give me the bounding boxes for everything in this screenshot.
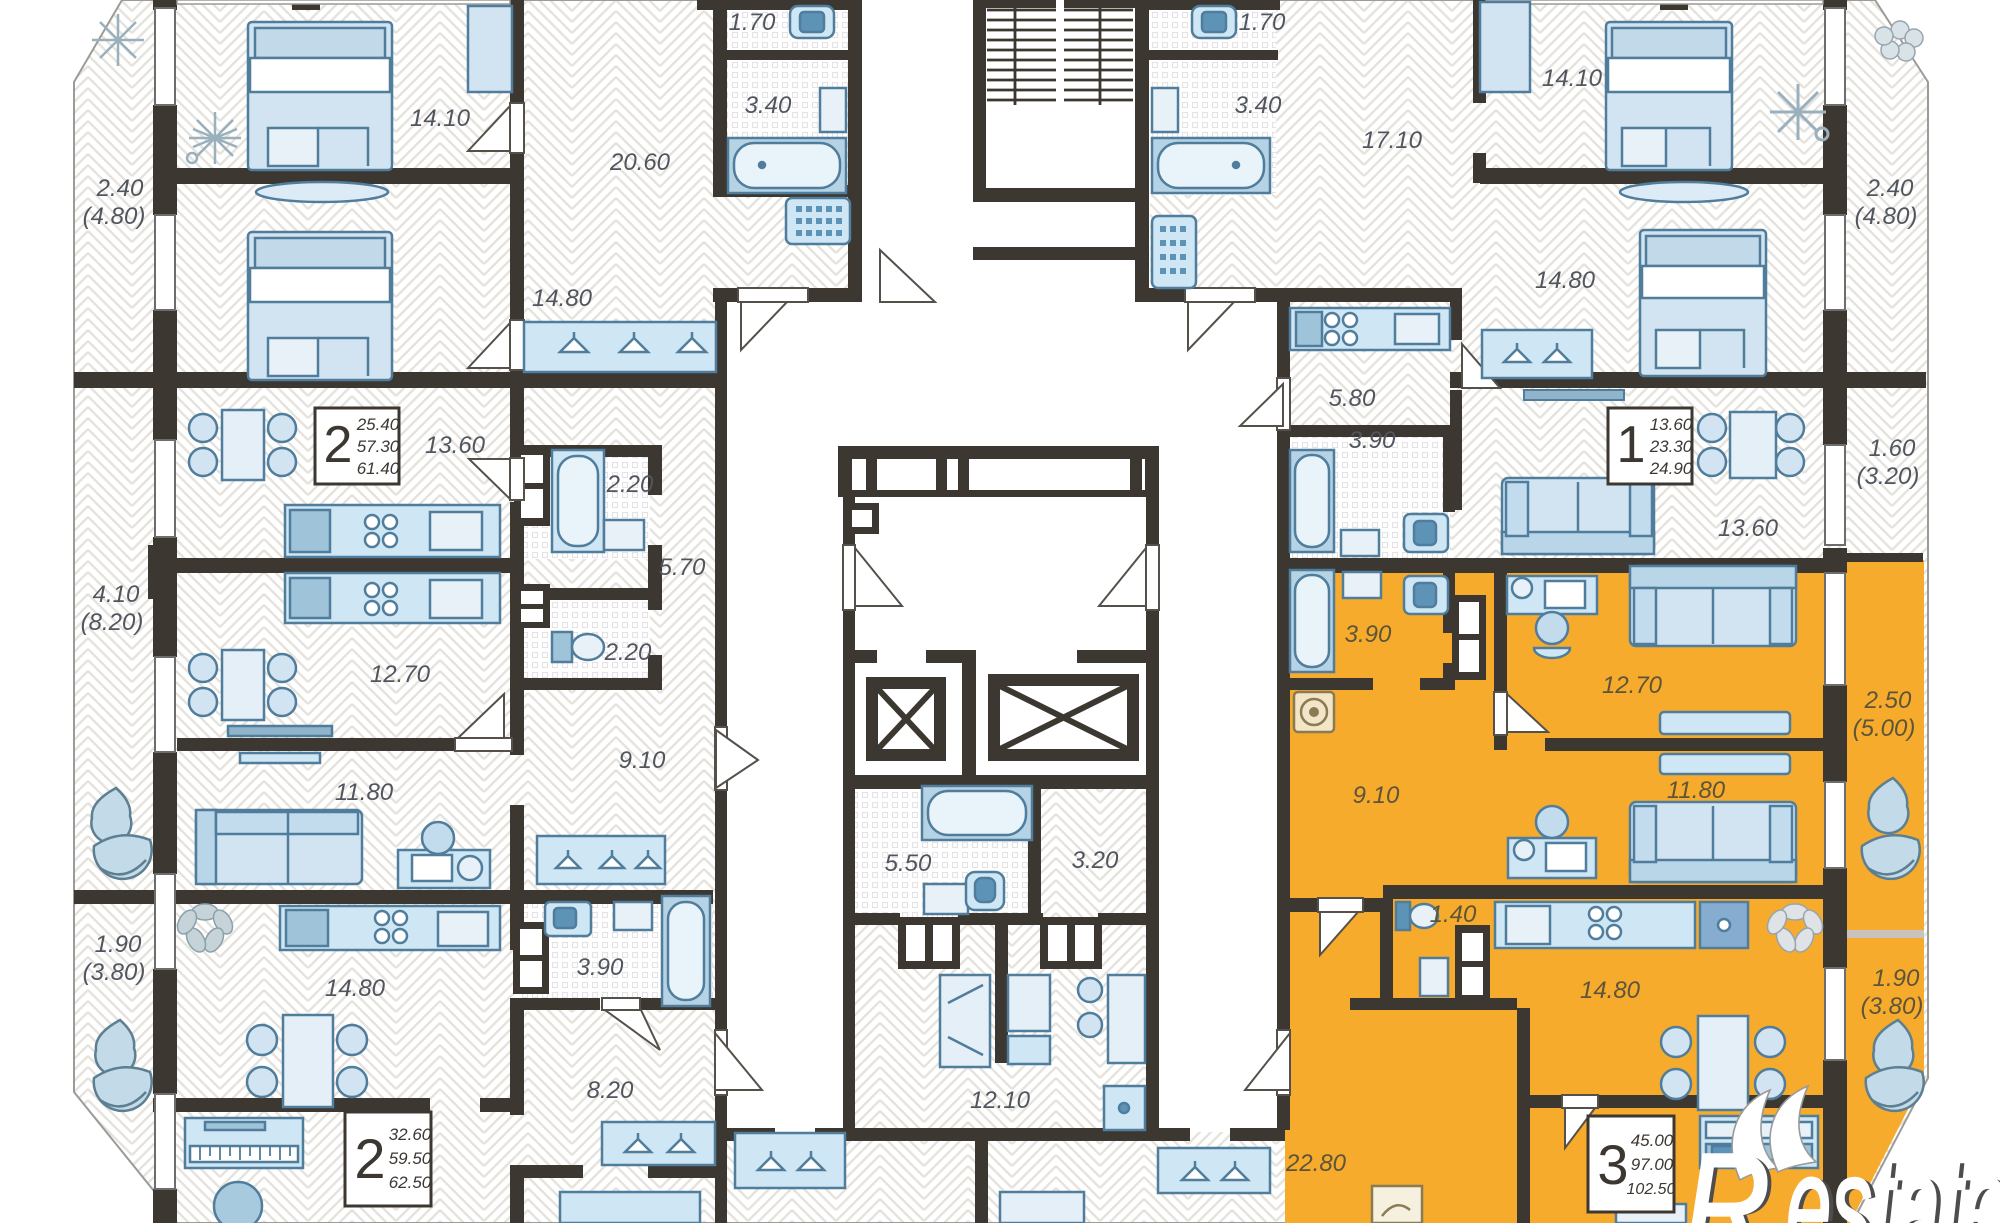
svg-text:1.90: 1.90 xyxy=(95,931,142,958)
svg-text:32.60: 32.60 xyxy=(389,1125,432,1144)
svg-text:8.20: 8.20 xyxy=(587,1077,634,1104)
svg-text:(5.00): (5.00) xyxy=(1853,715,1916,742)
svg-text:3.90: 3.90 xyxy=(1349,427,1396,454)
svg-text:23.30: 23.30 xyxy=(1649,437,1693,456)
svg-text:2.40: 2.40 xyxy=(1866,175,1914,202)
svg-text:12.70: 12.70 xyxy=(1602,672,1663,699)
svg-text:(3.80): (3.80) xyxy=(83,959,146,986)
svg-text:3.40: 3.40 xyxy=(1235,92,1282,119)
svg-text:12.10: 12.10 xyxy=(970,1087,1031,1114)
svg-text:1.60: 1.60 xyxy=(1869,435,1916,462)
svg-text:14.80: 14.80 xyxy=(532,285,593,312)
svg-text:13.60: 13.60 xyxy=(1650,415,1693,434)
svg-text:45.00: 45.00 xyxy=(1631,1131,1674,1150)
svg-text:3.40: 3.40 xyxy=(745,92,792,119)
svg-text:14.80: 14.80 xyxy=(325,975,386,1002)
svg-text:11.80: 11.80 xyxy=(335,779,394,806)
svg-text:2.20: 2.20 xyxy=(606,471,654,498)
svg-text:2.20: 2.20 xyxy=(604,639,652,666)
svg-text:estate: estate xyxy=(1786,1125,2000,1223)
svg-text:(3.80): (3.80) xyxy=(1861,993,1924,1020)
svg-text:97.00: 97.00 xyxy=(1631,1155,1674,1174)
svg-text:11.80: 11.80 xyxy=(1667,777,1726,804)
svg-text:2.40: 2.40 xyxy=(96,175,144,202)
svg-text:3.90: 3.90 xyxy=(1345,621,1392,648)
svg-text:5.50: 5.50 xyxy=(885,850,932,877)
svg-text:R: R xyxy=(1684,1122,1770,1223)
svg-text:20.60: 20.60 xyxy=(609,149,671,176)
svg-text:2.50: 2.50 xyxy=(1864,687,1912,714)
svg-text:2: 2 xyxy=(354,1127,385,1190)
svg-text:102.50: 102.50 xyxy=(1627,1181,1676,1198)
svg-text:62.50: 62.50 xyxy=(389,1173,432,1192)
svg-text:24.90: 24.90 xyxy=(1649,459,1693,478)
svg-text:14.80: 14.80 xyxy=(1535,267,1596,294)
svg-text:9.10: 9.10 xyxy=(619,747,666,774)
svg-text:(4.80): (4.80) xyxy=(1855,203,1918,230)
svg-text:(3.20): (3.20) xyxy=(1857,463,1920,490)
svg-text:1.90: 1.90 xyxy=(1873,965,1920,992)
svg-text:13.60: 13.60 xyxy=(425,432,486,459)
svg-text:5.70: 5.70 xyxy=(659,554,706,581)
svg-text:3.20: 3.20 xyxy=(1072,847,1119,874)
svg-text:2: 2 xyxy=(324,416,353,474)
svg-text:1.70: 1.70 xyxy=(729,9,776,36)
svg-text:17.10: 17.10 xyxy=(1362,127,1423,154)
svg-text:59.50: 59.50 xyxy=(389,1149,432,1168)
svg-text:22.80: 22.80 xyxy=(1285,1150,1347,1177)
svg-text:4.10: 4.10 xyxy=(93,581,140,608)
svg-text:25.40: 25.40 xyxy=(356,415,400,434)
svg-text:57.30: 57.30 xyxy=(357,437,400,456)
svg-text:(4.80): (4.80) xyxy=(83,203,146,230)
svg-text:14.10: 14.10 xyxy=(410,105,471,132)
svg-text:61.40: 61.40 xyxy=(357,459,400,478)
svg-text:9.10: 9.10 xyxy=(1353,782,1400,809)
svg-text:14.10: 14.10 xyxy=(1542,65,1603,92)
svg-text:14.80: 14.80 xyxy=(1580,977,1641,1004)
svg-text:1.70: 1.70 xyxy=(1239,9,1286,36)
svg-text:12.70: 12.70 xyxy=(370,661,431,688)
svg-text:13.60: 13.60 xyxy=(1718,515,1779,542)
svg-text:1.40: 1.40 xyxy=(1430,901,1477,928)
svg-text:(8.20): (8.20) xyxy=(81,609,144,636)
svg-text:5.80: 5.80 xyxy=(1329,385,1376,412)
svg-text:3.90: 3.90 xyxy=(577,954,624,981)
svg-text:3: 3 xyxy=(1597,1133,1628,1196)
svg-text:1: 1 xyxy=(1617,416,1646,474)
